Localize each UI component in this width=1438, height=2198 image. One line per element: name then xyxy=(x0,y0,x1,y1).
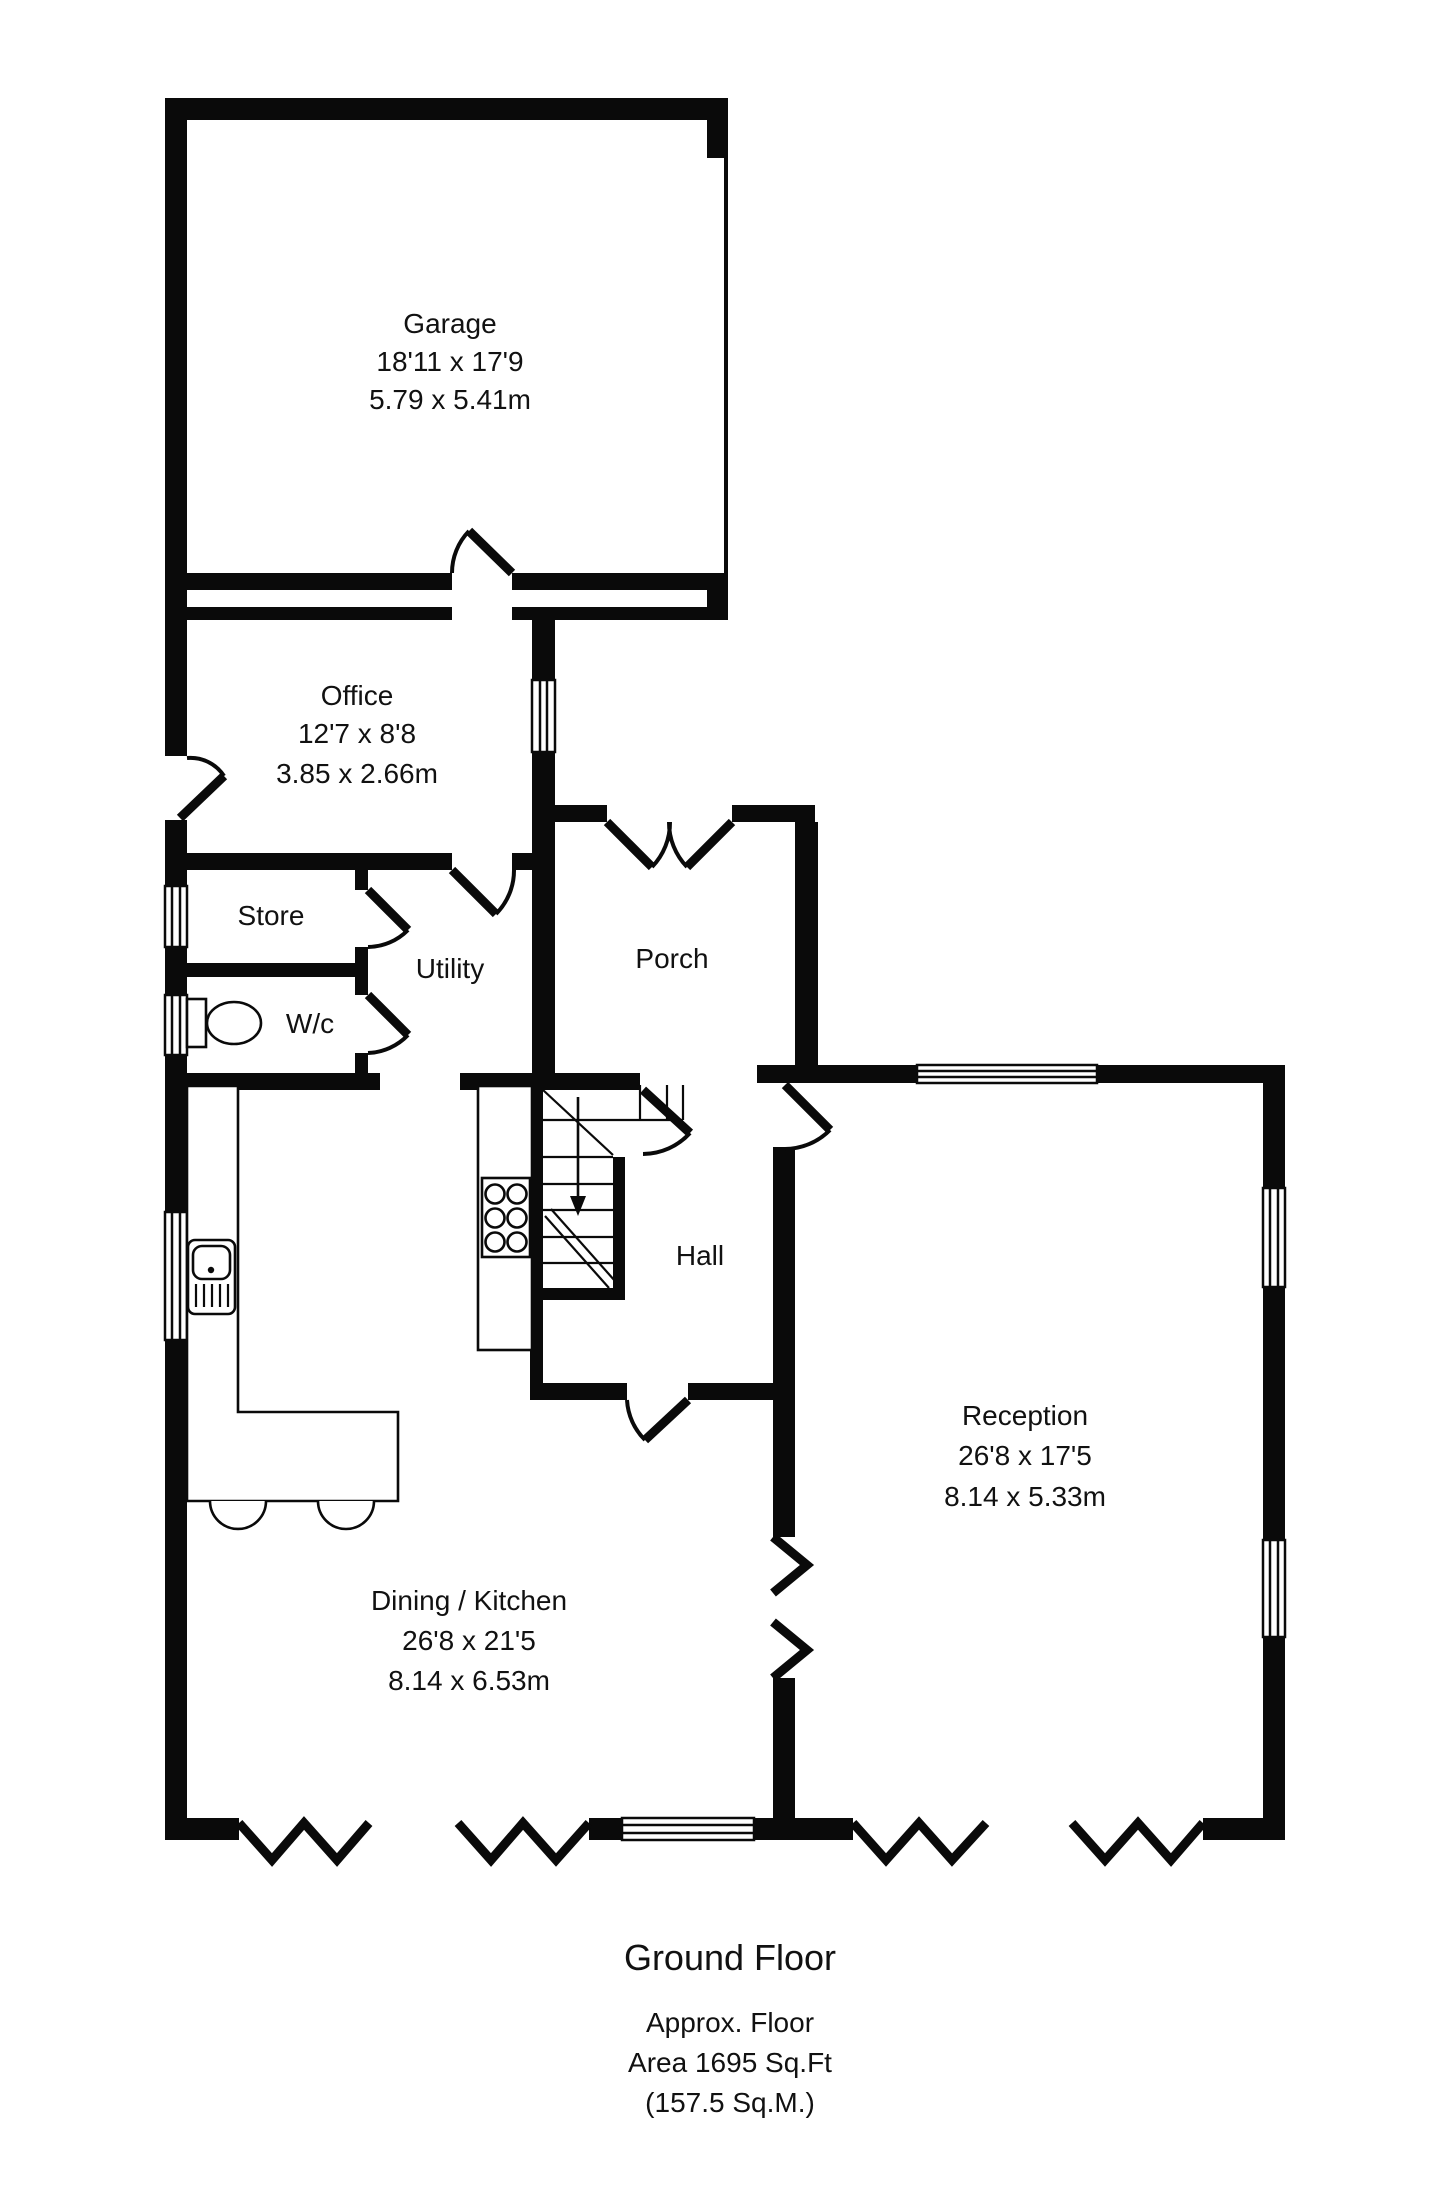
window-store-left xyxy=(165,886,187,947)
office-dim-imperial: 12'7 x 8'8 xyxy=(298,718,416,749)
wall-garage-right-thin xyxy=(724,120,728,573)
door-garage xyxy=(452,531,512,573)
wall-porch-top-right xyxy=(732,805,815,822)
wall-hall-bottom-left xyxy=(530,1383,627,1400)
sink-symbol xyxy=(188,1240,235,1314)
toilet-symbol xyxy=(187,999,261,1047)
wall-store-bottom xyxy=(187,963,355,977)
wall-garage-bottom-right xyxy=(512,573,707,590)
dining-kitchen-label: Dining / Kitchen xyxy=(371,1585,567,1616)
door-store xyxy=(368,890,408,947)
wall-garage-top xyxy=(165,98,728,120)
garage-label: Garage xyxy=(403,308,496,339)
footer-labels: Ground Floor Approx. Floor Area 1695 Sq.… xyxy=(624,1937,836,2118)
door-wc xyxy=(368,995,408,1053)
wc-label: W/c xyxy=(286,1008,334,1039)
hob-symbol xyxy=(482,1178,530,1257)
wall-bottom-4 xyxy=(1203,1818,1285,1840)
reception-label: Reception xyxy=(962,1400,1088,1431)
store-label: Store xyxy=(238,900,305,931)
wall-office-top-left xyxy=(187,607,452,620)
area-line-2: Area 1695 Sq.Ft xyxy=(628,2047,832,2078)
wall-bottom-1 xyxy=(165,1818,239,1840)
wall-hall-bottom-right xyxy=(688,1383,773,1400)
opening-zigzag-reception-1 xyxy=(853,1823,986,1860)
wall-reception-right xyxy=(1263,1065,1285,1840)
wall-office-bottom-left xyxy=(187,853,452,870)
reception-dim-metric: 8.14 x 5.33m xyxy=(944,1481,1106,1512)
garage-dim-metric: 5.79 x 5.41m xyxy=(369,384,531,415)
wall-garage-right-bottom-block xyxy=(707,573,728,620)
office-label: Office xyxy=(321,680,394,711)
garage-dim-imperial: 18'11 x 17'9 xyxy=(376,346,523,377)
wall-store-right-2 xyxy=(355,947,368,995)
wall-stairs-south xyxy=(530,1288,625,1300)
floor-title: Ground Floor xyxy=(624,1937,836,1978)
floorplan-page: Garage 18'11 x 17'9 5.79 x 5.41m Office … xyxy=(0,0,1438,2198)
opening-zigzag-reception-2 xyxy=(1072,1823,1203,1860)
window-office-right xyxy=(532,680,555,752)
wall-divider-lower xyxy=(773,1678,795,1818)
window-kitchen-left xyxy=(165,1212,187,1340)
window-reception-right-2 xyxy=(1263,1540,1285,1637)
opening-chevron-divider-1 xyxy=(773,1537,807,1593)
area-line-3: (157.5 Sq.M.) xyxy=(645,2087,815,2118)
opening-zigzag-dining-1 xyxy=(239,1823,369,1860)
door-porch-double xyxy=(607,822,732,867)
door-office-utility xyxy=(452,870,514,914)
wall-divider-upper xyxy=(773,1147,795,1537)
area-line-1: Approx. Floor xyxy=(646,2007,814,2038)
dining-kitchen-dim-metric: 8.14 x 6.53m xyxy=(388,1665,550,1696)
window-reception-right-1 xyxy=(1263,1188,1285,1287)
wall-porch-right xyxy=(795,822,818,1065)
window-dining-bottom xyxy=(622,1818,754,1840)
window-wc-left xyxy=(165,995,187,1055)
wall-office-top-right xyxy=(512,607,707,620)
dining-kitchen-dim-imperial: 26'8 x 21'5 xyxy=(402,1625,536,1656)
walls xyxy=(163,98,1285,1840)
window-reception-top xyxy=(917,1065,1097,1083)
reception-dim-imperial: 26'8 x 17'5 xyxy=(958,1440,1092,1471)
office-dim-metric: 3.85 x 2.66m xyxy=(276,758,438,789)
opening-zigzag-dining-2 xyxy=(458,1823,589,1860)
wall-garage-bottom-left xyxy=(165,573,452,590)
stool-symbol-1 xyxy=(210,1501,266,1529)
hall-label: Hall xyxy=(676,1240,724,1271)
floorplan-svg: Garage 18'11 x 17'9 5.79 x 5.41m Office … xyxy=(0,0,1438,2198)
wall-bottom-2 xyxy=(589,1818,622,1840)
porch-label: Porch xyxy=(635,943,708,974)
door-hall-dining xyxy=(627,1400,688,1440)
opening-chevron-divider-2 xyxy=(773,1622,807,1678)
wall-porch-top-left xyxy=(532,805,607,822)
utility-label: Utility xyxy=(416,953,484,984)
stool-symbol-2 xyxy=(318,1501,374,1529)
wall-garage-right-top-block xyxy=(707,120,728,158)
wall-stairs-east xyxy=(613,1157,625,1300)
wall-bottom-3 xyxy=(754,1818,853,1840)
door-reception xyxy=(785,1085,830,1149)
wall-outer-left xyxy=(165,98,187,1840)
wall-store-right-1 xyxy=(355,853,368,890)
